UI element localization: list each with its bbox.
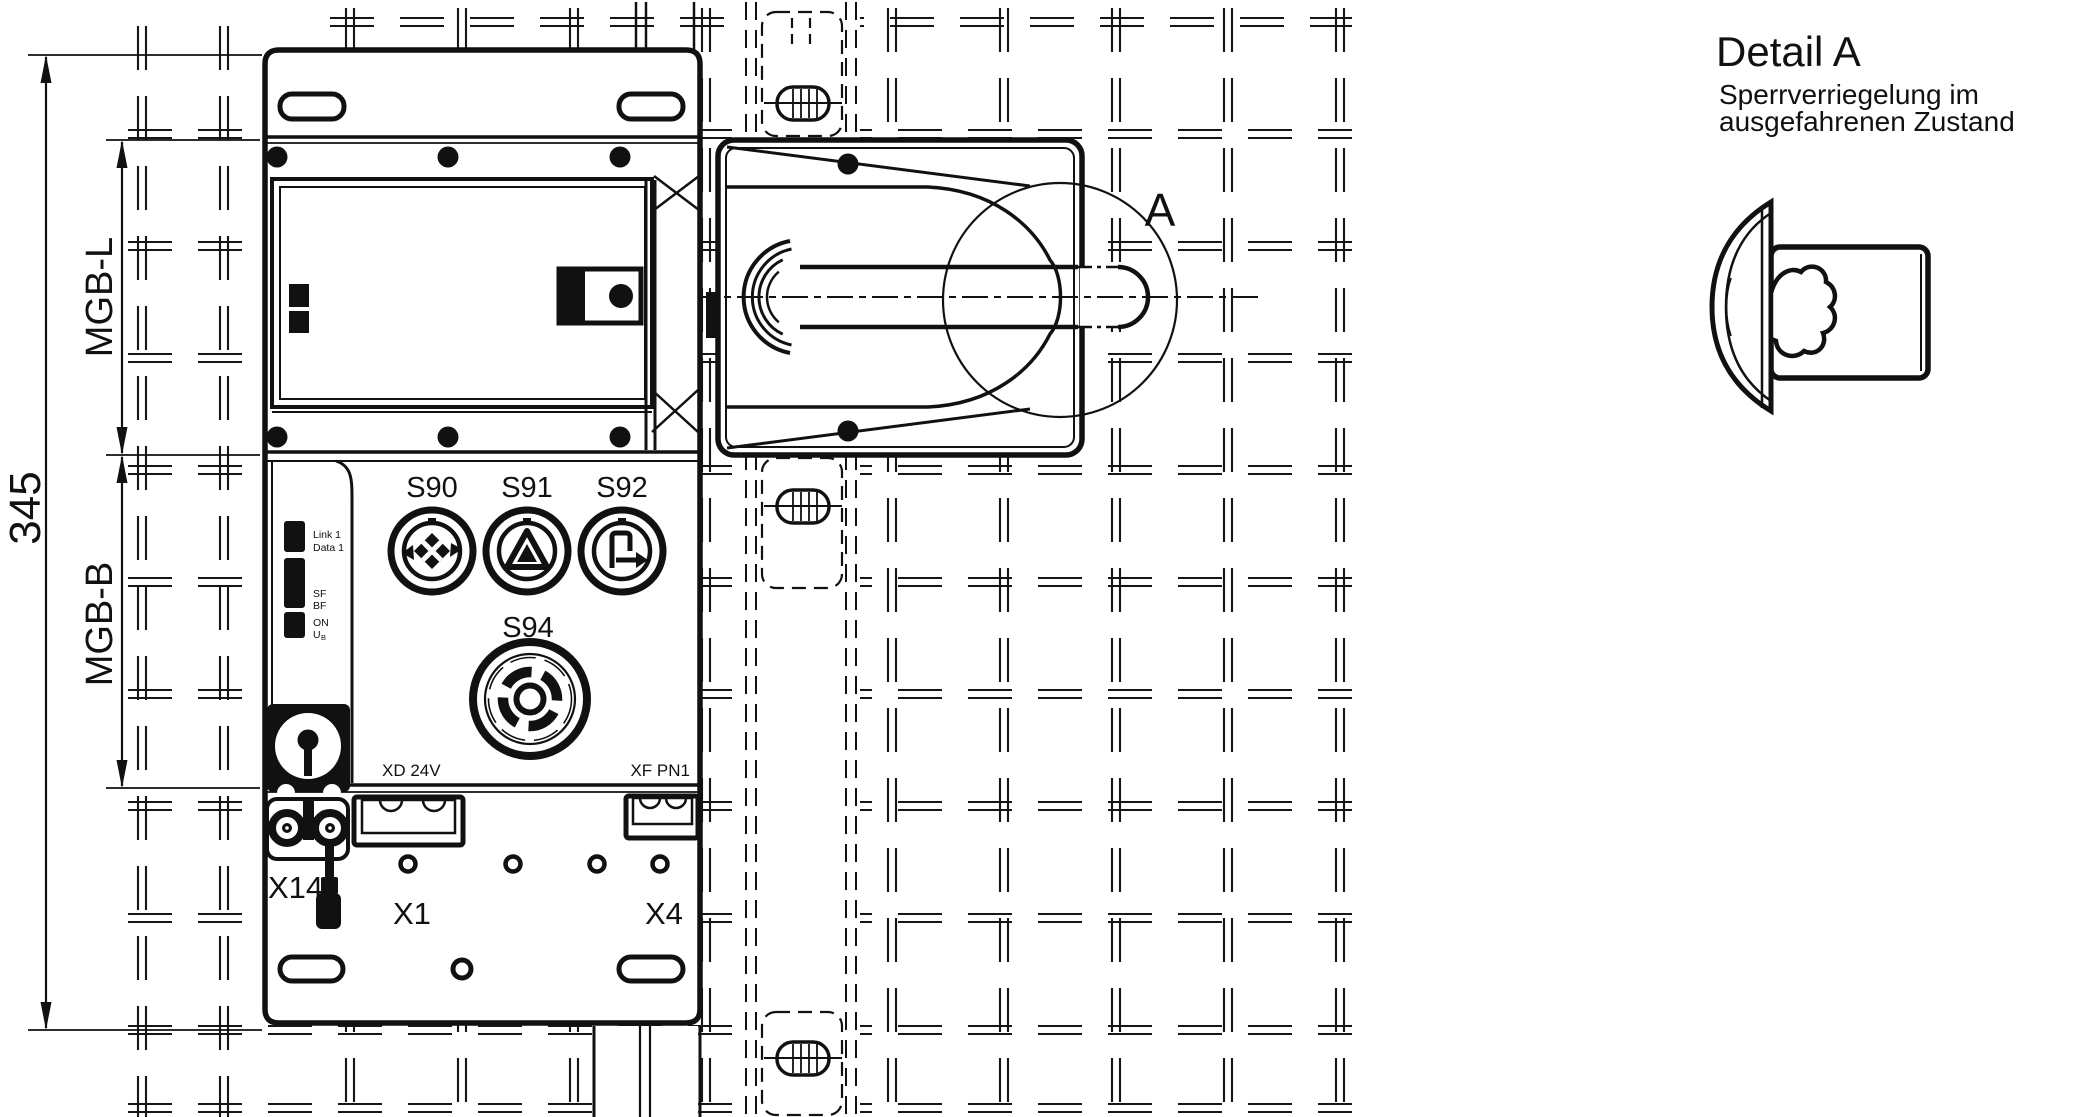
dimension-345-label: 345 [1, 471, 50, 544]
led-label-data: Data 1 [313, 542, 344, 554]
technical-drawing-page: A [0, 0, 2082, 1117]
label-x14: X14 [268, 870, 323, 905]
led-block-sf-bf [284, 558, 305, 608]
detail-a-subtitle-2: ausgefahrenen Zustand [1719, 106, 2015, 137]
connector-label-xd24v: XD 24V [382, 761, 441, 780]
led-label-on: ON [313, 617, 329, 629]
mounting-slot [619, 957, 683, 981]
led-label-ub-sub: B [321, 633, 326, 642]
mounting-slot [619, 94, 683, 119]
led-block-on-ub [284, 612, 305, 638]
mounting-slot [280, 957, 343, 981]
handle-bolt-bottom [838, 421, 859, 442]
led-label-sf: SF [313, 588, 326, 600]
connector-label-xfpn1: XF PN1 [630, 761, 690, 780]
detail-marker-letter: A [1145, 184, 1176, 236]
led-block-link-data [284, 521, 305, 552]
door-post-top [742, 0, 860, 145]
frame-post-bottom-stub [594, 1026, 700, 1117]
dimension-mgb-l-label: MGB-L [79, 237, 121, 357]
mounting-slot [280, 94, 344, 119]
door-post-bottom [742, 450, 860, 1117]
mgb-installation-drawing: A [0, 0, 2082, 1117]
button-s92-label: S92 [596, 472, 648, 504]
bolt-profile-cutout [1771, 267, 1835, 356]
label-x4: X4 [645, 896, 683, 931]
led-label-ub: U [313, 629, 321, 641]
main-device: Link 1 Data 1 SF BF ON U B S90 [265, 50, 700, 1023]
auxiliary-release-lock [267, 704, 350, 802]
connector-x4-block [626, 796, 698, 838]
button-s90-label: S90 [406, 472, 458, 504]
lock-window [559, 269, 641, 323]
button-s91-label: S91 [501, 472, 553, 504]
latch-tongue [706, 292, 720, 338]
led-label-bf: BF [313, 600, 326, 612]
detail-a-title: Detail A [1716, 28, 1861, 75]
label-x1: X1 [393, 896, 431, 931]
connector-x1-block [354, 797, 463, 845]
led-label-link: Link 1 [313, 529, 341, 541]
handle-bolt-top [838, 154, 859, 175]
dimension-mgb-b-label: MGB-B [79, 562, 121, 687]
